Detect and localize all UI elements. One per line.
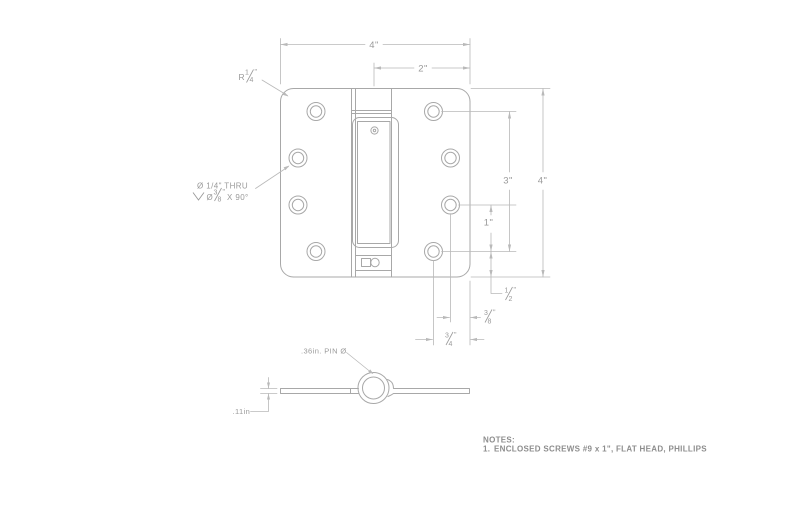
dim-half-width-label: 2" [418,64,427,75]
dim-height-label: 4" [538,176,547,187]
svg-text:1: 1 [245,70,249,77]
hinge-drawing: 4" 2" 4" 3" 1" R 1 4 " Ø 1/4" THRU Ø 3 8… [0,0,800,518]
svg-text:8: 8 [218,197,222,204]
thickness-label: .11in [233,407,251,416]
svg-text:X 90°: X 90° [227,193,249,202]
svg-text:": " [255,69,258,76]
svg-text:1: 1 [505,288,509,295]
dim-hole-pitch-label: 1" [484,218,493,229]
svg-text:Ø: Ø [207,193,214,202]
svg-text:3: 3 [445,333,449,340]
svg-text:": " [493,310,496,317]
pin-dia-label: .36in. PIN Ø [301,347,347,356]
svg-text:": " [223,189,226,196]
note-item-number: 1. [483,445,490,454]
note-item-text: ENCLOSED SCREWS #9 x 1", FLAT HEAD, PHIL… [494,445,707,454]
svg-text:4: 4 [250,77,254,84]
svg-text:3: 3 [484,310,488,317]
svg-text:": " [514,287,517,294]
dim-hole-span-label: 3" [503,176,512,187]
drawing-sheet: 4" 2" 4" 3" 1" R 1 4 " Ø 1/4" THRU Ø 3 8… [0,0,800,518]
svg-text:2: 2 [509,296,513,303]
sheet-background [0,0,800,518]
svg-text:": " [454,332,457,339]
svg-text:8: 8 [488,319,492,326]
svg-text:4: 4 [449,341,453,348]
dim-width-label: 4" [369,40,378,51]
notes-title: NOTES: [483,436,515,445]
